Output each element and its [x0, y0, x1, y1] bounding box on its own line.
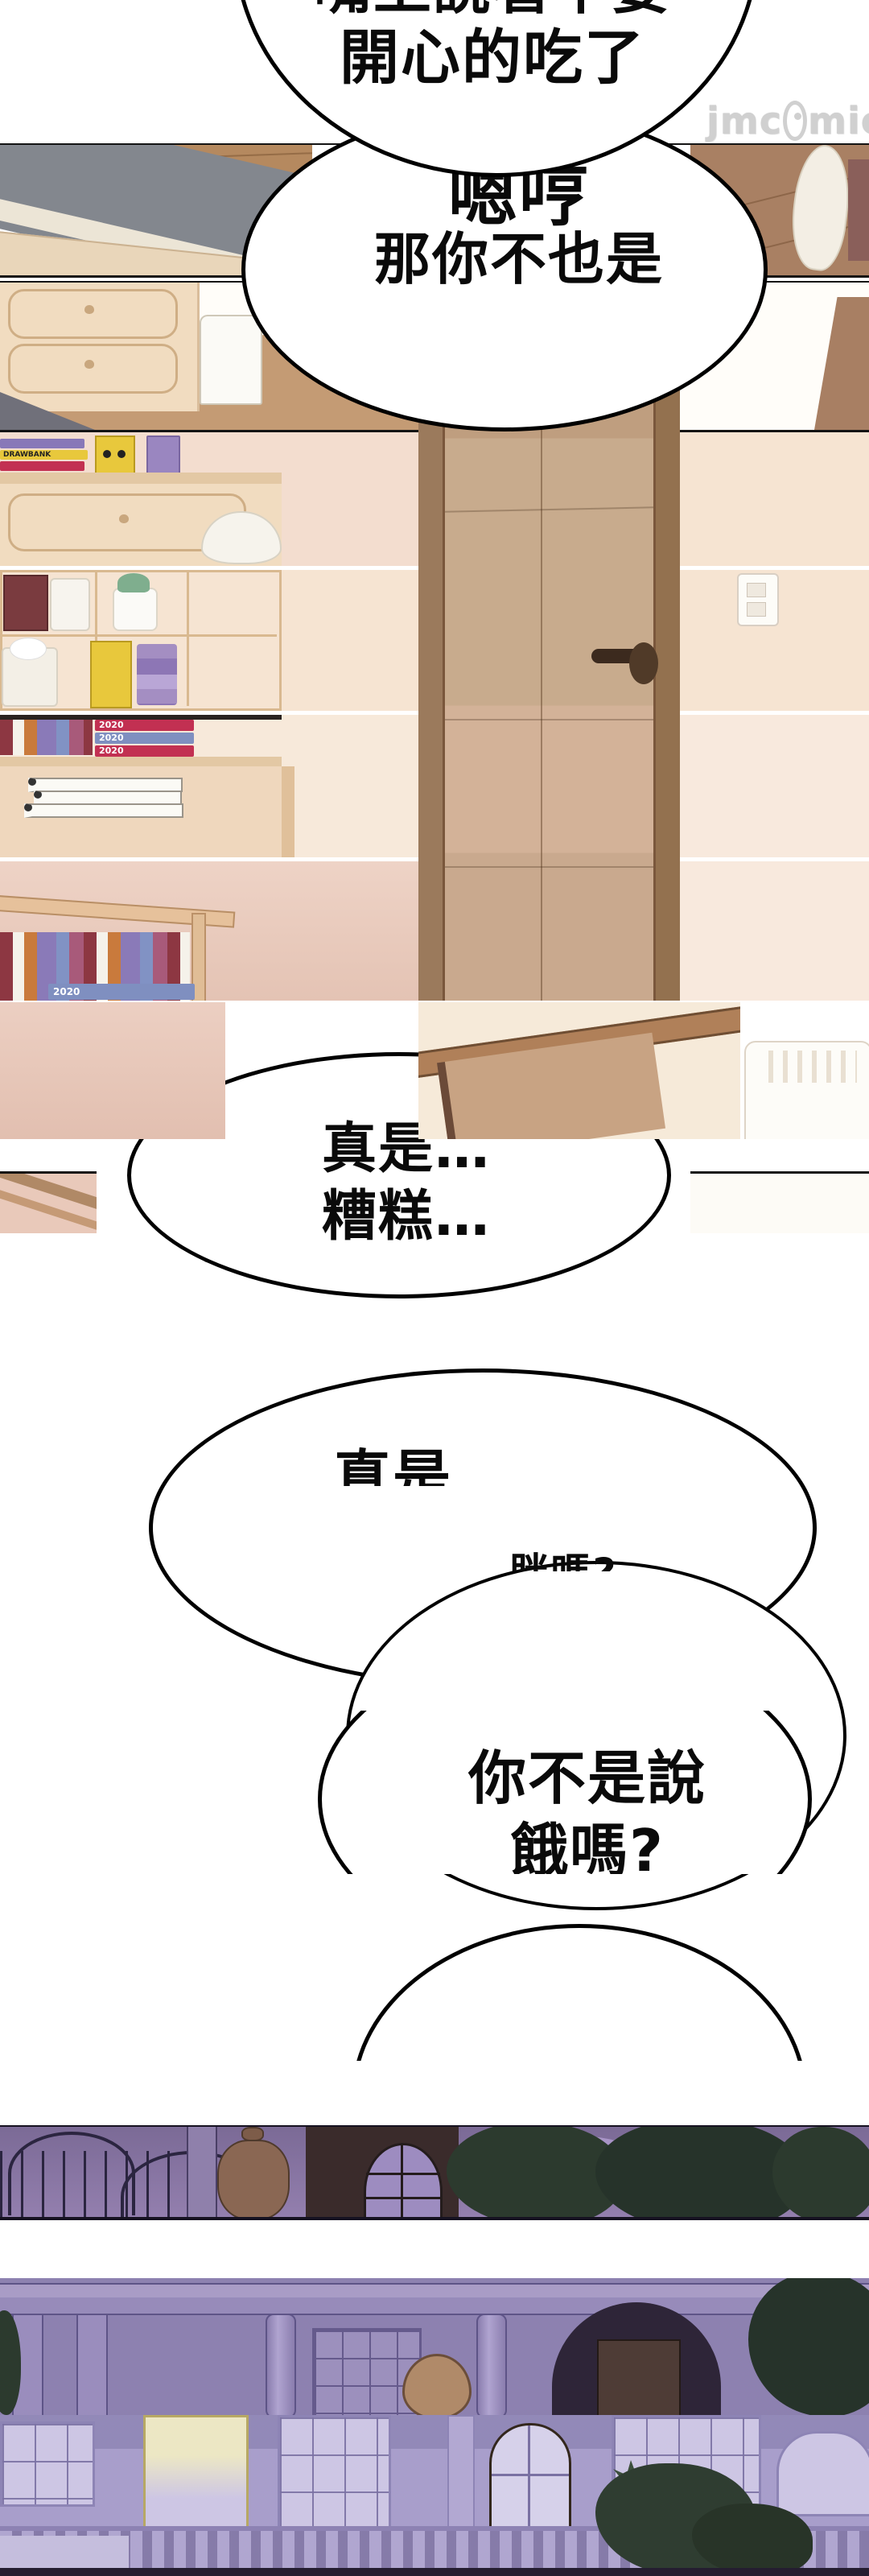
- mascot-eye: [794, 113, 801, 120]
- furniture-wedge: [814, 297, 869, 430]
- watermark-text-right: mic: [808, 99, 869, 142]
- speech-bubble-7: [338, 1922, 813, 2061]
- shelf-left: DRAWBANK: [0, 432, 418, 566]
- bottom-dark-band: [0, 2568, 869, 2576]
- wall-right: [680, 715, 869, 857]
- door-mullion: [528, 2425, 530, 2532]
- cubby-divider: [187, 570, 189, 706]
- garden-urn: [217, 2140, 290, 2220]
- door-seam: [445, 506, 653, 512]
- drawer: [8, 289, 178, 339]
- cornice: [0, 2297, 869, 2315]
- window-glowing: [143, 2415, 249, 2533]
- cubby-left: [0, 570, 418, 711]
- arched-glass-door: [489, 2423, 571, 2534]
- red-box: [3, 575, 48, 631]
- bubble4-clipped-line: 真是: [320, 1447, 465, 1486]
- radiator-slats: [768, 1051, 857, 1083]
- window-mullion: [366, 2173, 440, 2175]
- tissue-puff: [10, 638, 47, 660]
- window-mullion: [401, 2145, 403, 2219]
- cornice: [0, 2283, 869, 2299]
- cabinet-sliver: [848, 159, 869, 261]
- panel-night-balcony: [0, 2415, 869, 2576]
- book-2020-red2: 2020: [95, 745, 194, 757]
- window-mullion: [366, 2197, 440, 2199]
- book-yellow-drawbank: DRAWBANK: [0, 450, 88, 460]
- tree: [748, 2278, 869, 2417]
- vase: [50, 578, 90, 631]
- book-2020-blue: 2020: [95, 733, 194, 744]
- window-right-arch: [776, 2431, 869, 2516]
- pilaster: [76, 2314, 108, 2417]
- heart-knob: [119, 514, 129, 523]
- bubble5-line1: 胖嗎?: [499, 1552, 628, 1571]
- watermark-text-left: jmc: [706, 99, 782, 142]
- heart-knob: [84, 360, 94, 369]
- door-handle-base: [629, 642, 658, 684]
- bubble1-line1: 嘴上說著不要: [266, 0, 719, 19]
- radiator: [744, 1041, 869, 1139]
- open-door-scene: [418, 1002, 740, 1139]
- fish-mascot-icon: [783, 101, 807, 141]
- door-mullion: [492, 2474, 569, 2476]
- shelf3-left: 2020 2020 2020: [0, 715, 418, 857]
- switch-rocker: [747, 583, 766, 597]
- column: [266, 2314, 296, 2417]
- book-red: [0, 461, 84, 471]
- drawer: [8, 344, 178, 394]
- webtoon-page: DRAWBANK: [0, 0, 869, 2576]
- bubble3-line2: 糟糕…: [274, 1188, 539, 1245]
- book-2020-blue: 2020: [48, 984, 195, 1000]
- egg-urn: [402, 2354, 472, 2417]
- bubble1-line2: 開心的吃了: [211, 27, 774, 90]
- gate-pillar: [187, 2127, 217, 2217]
- dresser: [0, 283, 200, 411]
- panel-open-door: [0, 1002, 869, 1139]
- binder-yellow: [95, 436, 135, 474]
- binder-hole: [103, 450, 111, 458]
- spiral-notebook: [24, 803, 183, 818]
- cornice-left: 2020: [0, 861, 418, 1001]
- tree: [772, 2127, 869, 2220]
- bubble4-line1: 真是: [320, 1447, 465, 1486]
- succulent-pot: [113, 588, 158, 631]
- door-seam: [445, 719, 653, 720]
- book-purple: [0, 439, 84, 448]
- wall-right: [680, 432, 869, 566]
- window-left: [0, 2421, 95, 2507]
- pink-wall-left: [0, 1002, 225, 1139]
- bubble7-outline: [352, 1924, 807, 2061]
- panel-night-gate: [0, 2125, 869, 2220]
- binder-hole: [117, 450, 126, 458]
- bubble6-line1: 你不是說: [346, 1748, 821, 1810]
- heart-knob: [84, 305, 94, 314]
- light-switch: [737, 573, 779, 626]
- wall-right: [680, 861, 869, 1001]
- doorframe-wedge: [0, 1171, 97, 1233]
- window-center: [278, 2415, 391, 2533]
- entrance-door: [597, 2339, 681, 2417]
- door-seam: [445, 866, 653, 868]
- speech-bubble-6: 你不是說 餓嗎?: [306, 1711, 821, 1874]
- wall-right: [680, 570, 869, 711]
- column: [476, 2314, 507, 2417]
- bubble1-clipped-line: 嘴上說著不要: [266, 0, 719, 19]
- cubby-shelf-mid: [0, 634, 277, 637]
- watermark: jmc mic: [706, 100, 869, 142]
- book-2020-red: 2020: [95, 720, 194, 731]
- panel-night-facade: [0, 2278, 869, 2417]
- towels-purple: [137, 644, 177, 705]
- trash-bin: [200, 315, 262, 405]
- gate-bars: [0, 2151, 189, 2217]
- bubble6-line2: 餓嗎?: [346, 1821, 821, 1874]
- bubble5-clipped-line: 胖嗎?: [499, 1552, 628, 1571]
- binder-yellow: [90, 641, 132, 708]
- bubble2-line2: 那你不也是: [237, 230, 801, 290]
- white-wall-right: [690, 1171, 869, 1233]
- succulent-plant: [117, 573, 150, 592]
- box-purple: [146, 436, 180, 474]
- thin-books-row: [0, 720, 93, 755]
- switch-rocker: [747, 602, 766, 617]
